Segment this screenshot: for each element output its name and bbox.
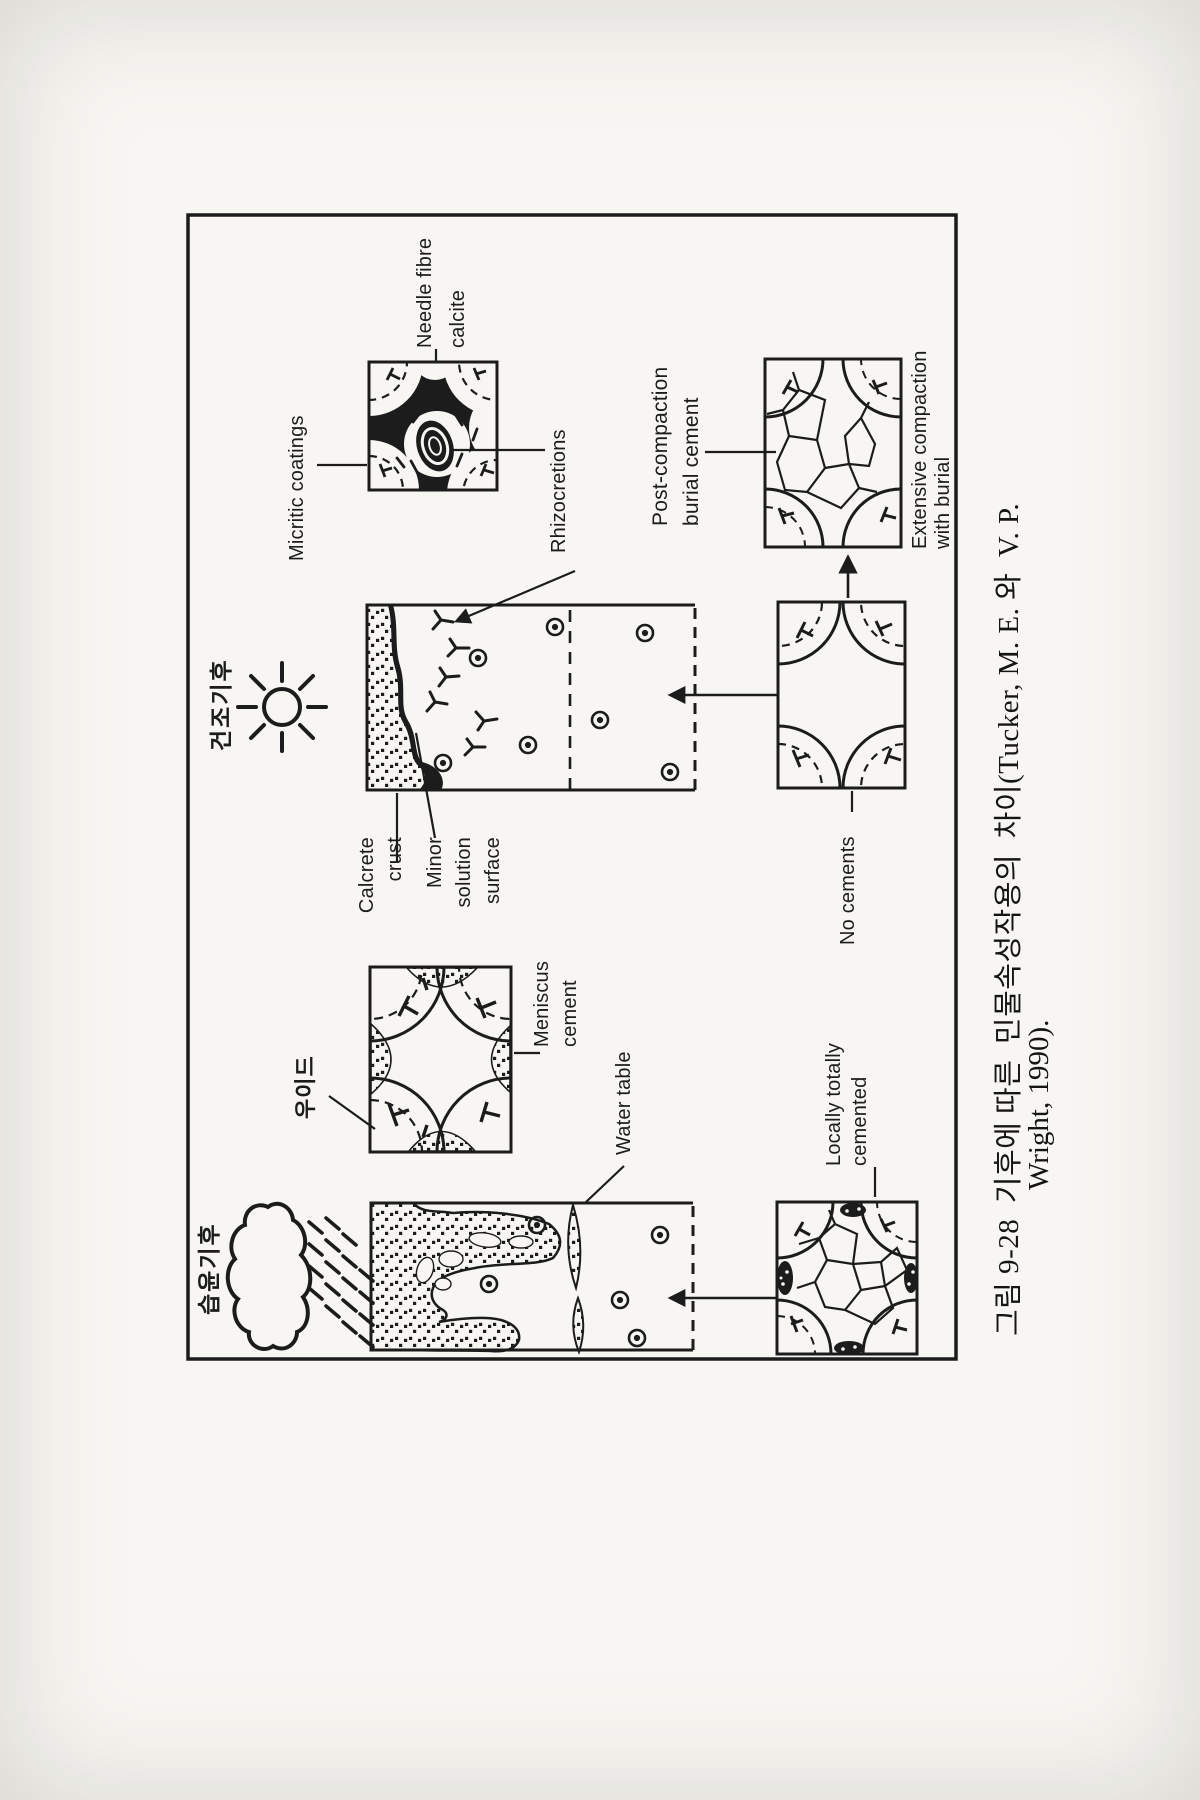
meniscus-cement-label: Meniscus cement	[528, 961, 584, 1047]
extensive-compaction-label: Extensive compaction with burial	[909, 350, 955, 549]
meniscus-stipple-patches	[371, 968, 510, 1151]
dry-climate-label: 건조기후	[208, 658, 234, 751]
post-compaction-label: Post-compaction burial cement	[645, 367, 707, 526]
figure-caption-line2: Wright, 1990).	[1023, 1020, 1056, 1190]
root-marks	[427, 611, 497, 755]
leader-ooid	[329, 1096, 375, 1129]
water-table-label: Water table	[611, 1051, 637, 1155]
scanned-book-page: 습윤기후 건조기후 우이드 Micritic coatings Needle f…	[0, 0, 1200, 1800]
humid-climate-label: 습윤기후	[196, 1222, 222, 1315]
arid-profile-box	[367, 605, 695, 790]
sun-icon	[238, 663, 326, 751]
rhizocretions-label: Rhizocretions	[546, 429, 572, 553]
soil-with-solution-pipes	[371, 1203, 560, 1351]
minor-solution-surface-label: Minor solution surface	[421, 837, 508, 949]
no-cements-label: No cements	[835, 836, 861, 945]
micritic-coatings-label: Micritic coatings	[284, 415, 310, 561]
ooid-label: 우이드	[293, 1055, 319, 1119]
leader-water-table	[586, 1166, 624, 1202]
rain-icon	[309, 1218, 373, 1347]
figure-9-28: 습윤기후 건조기후 우이드 Micritic coatings Needle f…	[185, 212, 1065, 1362]
rain-cloud-icon	[228, 1204, 310, 1349]
water-table-lenses	[568, 1205, 583, 1352]
locally-cemented-label: Locally totally cemented	[821, 1043, 873, 1166]
calcrete-crust-label: Calcrete crust	[353, 837, 409, 949]
micrite-patches	[777, 1203, 918, 1355]
locally-cemented-box	[721, 1146, 973, 1362]
leader-rhizocretions-arrow	[457, 571, 575, 621]
humid-profile-box	[371, 1203, 693, 1352]
grain-symbols	[435, 619, 678, 780]
figure-caption-line1: 그림 9-28 기후에 따른 민물속성작용의 차이(Tucker, M. E. …	[985, 503, 1027, 1336]
needle-fibre-calcite-label: Needle fibre calcite	[409, 238, 475, 348]
